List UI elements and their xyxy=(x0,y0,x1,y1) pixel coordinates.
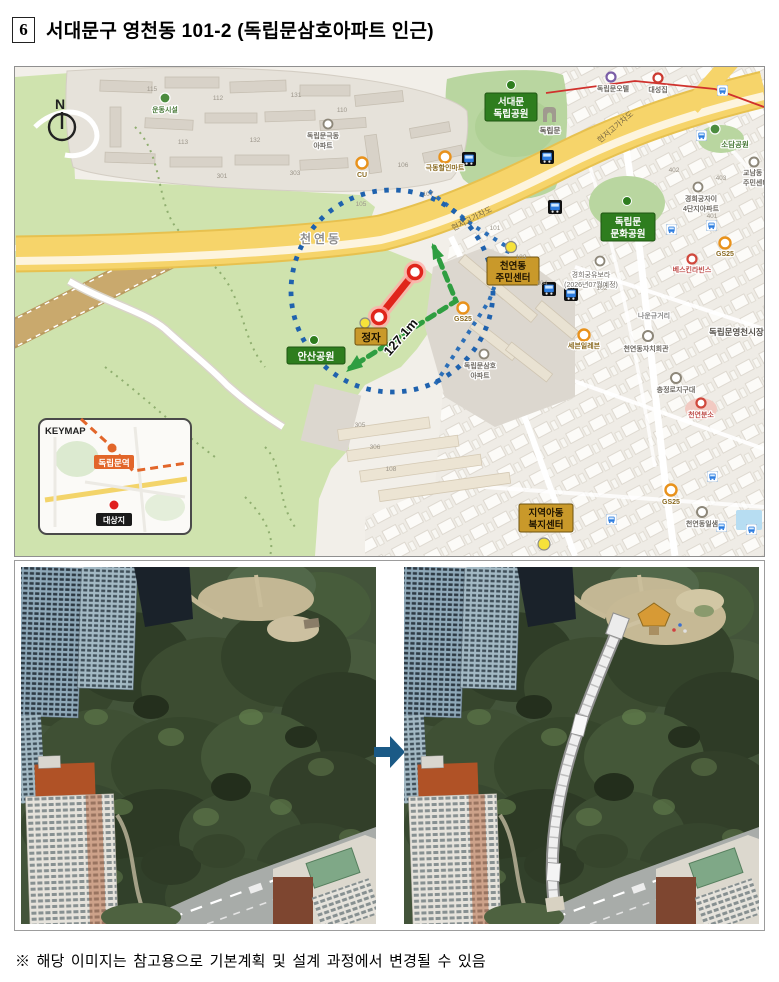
jeongja-label: 정자 xyxy=(361,331,381,344)
building-number: 305 xyxy=(355,422,366,429)
gate-label: 독립문 xyxy=(540,125,561,135)
samho-icon xyxy=(480,350,489,359)
naun-street-label: 나운규거리 xyxy=(638,311,670,320)
munhwa-park-label-2: 문화공원 xyxy=(611,228,646,240)
keymap-station-dot xyxy=(108,444,117,453)
page-title: 6 서대문구 영천동 101-2 (독립문삼호아파트 인근) xyxy=(12,16,434,43)
ubora-label-2: (2026년07월예정) xyxy=(564,280,618,289)
jai-label-1: 경희궁자이 xyxy=(685,194,717,203)
building-number: 105 xyxy=(356,201,367,208)
seodaemun-park-label-1: 서대문 xyxy=(498,96,524,108)
sports-facility-icon xyxy=(160,93,170,103)
building-number: 112 xyxy=(213,95,224,102)
gs25-label-b: GS25 xyxy=(716,251,734,258)
forward-arrow xyxy=(374,736,405,768)
building-number: 106 xyxy=(398,162,409,169)
location-map: 127.1m CU 극동할인마트 GS25 GS25 GS25 세븐일레븐 베스… xyxy=(15,67,764,556)
building-number: 103 xyxy=(516,254,527,261)
ubora-label-1: 경희궁유보라 xyxy=(572,270,611,279)
building-number: 108 xyxy=(386,466,397,473)
seodaemun-park-label-2: 독립공원 xyxy=(494,108,529,120)
jumin-center-label-2: 주민센터 xyxy=(496,272,531,284)
building-number: 104 xyxy=(537,280,548,287)
geukdong-label-1: 독립문극동 xyxy=(307,131,340,140)
gs25-label-a: GS25 xyxy=(454,316,472,323)
gs25-label-c: GS25 xyxy=(662,499,680,506)
jumin-center-label-1: 천연동 xyxy=(500,261,526,272)
route-endpoint-lower xyxy=(373,311,386,324)
ubora-icon xyxy=(596,257,605,266)
building-number: 110 xyxy=(337,107,348,114)
samho-label-1: 독립문삼호 xyxy=(464,361,497,370)
cu-store-icon xyxy=(357,158,368,169)
sodam-park-label: 소담공원 xyxy=(721,139,749,149)
ilsaem-icon xyxy=(697,507,707,517)
jigudae-label: 충정로지구대 xyxy=(657,385,696,394)
jeongja-dot xyxy=(360,318,370,328)
building-number: 301 xyxy=(217,173,228,180)
keymap-site-dot xyxy=(109,500,119,510)
mart-icon xyxy=(440,152,451,163)
jai-icon xyxy=(694,183,703,192)
mart-label: 극동할인마트 xyxy=(426,163,465,172)
daeseong-label: 대성집 xyxy=(648,85,667,94)
page-title-text: 서대문구 영천동 101-2 (독립문삼호아파트 인근) xyxy=(46,16,434,43)
ilsaem-label: 천연동일샘 xyxy=(686,519,718,528)
building-number: 102 xyxy=(597,285,608,292)
geukdong-label-2: 아파트 xyxy=(313,141,333,150)
aerial-photos xyxy=(15,561,764,930)
bokji-center-dot xyxy=(538,538,550,550)
aerial-photos-panel xyxy=(14,560,765,931)
gs25-icon-b xyxy=(720,238,731,249)
escalator-base xyxy=(545,896,565,912)
gs25-icon-c xyxy=(666,485,677,496)
geukdong-icon xyxy=(324,120,333,129)
daeseong-icon xyxy=(654,74,663,83)
photo-after xyxy=(389,561,764,930)
baskin-icon xyxy=(688,255,697,264)
jigudae-icon xyxy=(671,373,681,383)
photo-before xyxy=(15,561,401,930)
bokji-center-label-1: 지역아동 xyxy=(529,507,564,519)
bunso-label: 천연분소 xyxy=(688,410,714,419)
arrow-icon xyxy=(374,736,405,768)
jachi-icon xyxy=(643,331,653,341)
sodam-park-dot xyxy=(710,124,720,134)
seven-eleven-label: 세븐일레븐 xyxy=(568,341,601,350)
gyonam-label-1: 교남동 xyxy=(743,168,763,177)
building-number: 402 xyxy=(669,167,680,174)
baskin-label: 베스킨라빈스 xyxy=(673,265,712,274)
building-number: 306 xyxy=(370,444,381,451)
keymap-site-label: 대상지 xyxy=(103,515,125,525)
keymap-title: KEYMAP xyxy=(45,426,86,437)
building-number: 131 xyxy=(291,92,302,99)
building-number: 401 xyxy=(707,213,718,220)
sports-facility-label: 운동시설 xyxy=(152,105,178,114)
building-number: 113 xyxy=(178,139,189,146)
bokji-center-label-2: 복지센터 xyxy=(529,519,564,531)
ansan-park-dot xyxy=(310,336,319,345)
jumin-center-dot xyxy=(506,242,517,253)
yeongcheon-market-label: 독립문영천시장 xyxy=(709,327,764,337)
munhwa-park-dot xyxy=(623,197,632,206)
cu-label: CU xyxy=(357,172,367,179)
bunso-icon xyxy=(697,399,706,408)
building-number: 403 xyxy=(716,175,727,182)
building-number: 101 xyxy=(490,225,501,232)
gs25-icon-a xyxy=(458,303,469,314)
munhwa-park-label-1: 독립문 xyxy=(615,216,641,228)
keymap-inset: 독립문역 대상지 KEYMAP xyxy=(39,419,191,534)
building-number: 107 xyxy=(423,191,434,198)
officetel-label: 독립문오텔 xyxy=(597,84,630,93)
seven-eleven-icon xyxy=(579,330,590,341)
location-map-panel: 127.1m CU 극동할인마트 GS25 GS25 GS25 세븐일레븐 베스… xyxy=(14,66,765,557)
samho-label-2: 아파트 xyxy=(470,371,490,380)
building-number: 115 xyxy=(147,86,158,93)
ansan-park-label: 안산공원 xyxy=(298,350,335,363)
footnote: ※ 해당 이미지는 참고용으로 기본계획 및 설계 과정에서 변경될 수 있음 xyxy=(15,950,486,971)
gyonam-label-2: 주민센터 xyxy=(743,178,764,187)
route-endpoint-upper xyxy=(409,266,422,279)
jai-label-2: 4단지아파트 xyxy=(683,204,720,213)
area-label-cheonyeondong: 천연동 xyxy=(300,231,342,246)
seodaemun-park-dot xyxy=(507,81,516,90)
gyonam-icon xyxy=(750,158,759,167)
jachi-label: 천연동자치회관 xyxy=(623,344,669,353)
building-number: 303 xyxy=(290,170,301,177)
compass-n-label: N xyxy=(55,96,65,112)
keymap-station-label: 독립문역 xyxy=(98,458,129,468)
title-number-box: 6 xyxy=(12,17,35,43)
building-number: 132 xyxy=(250,137,261,144)
officetel-icon xyxy=(607,73,616,82)
